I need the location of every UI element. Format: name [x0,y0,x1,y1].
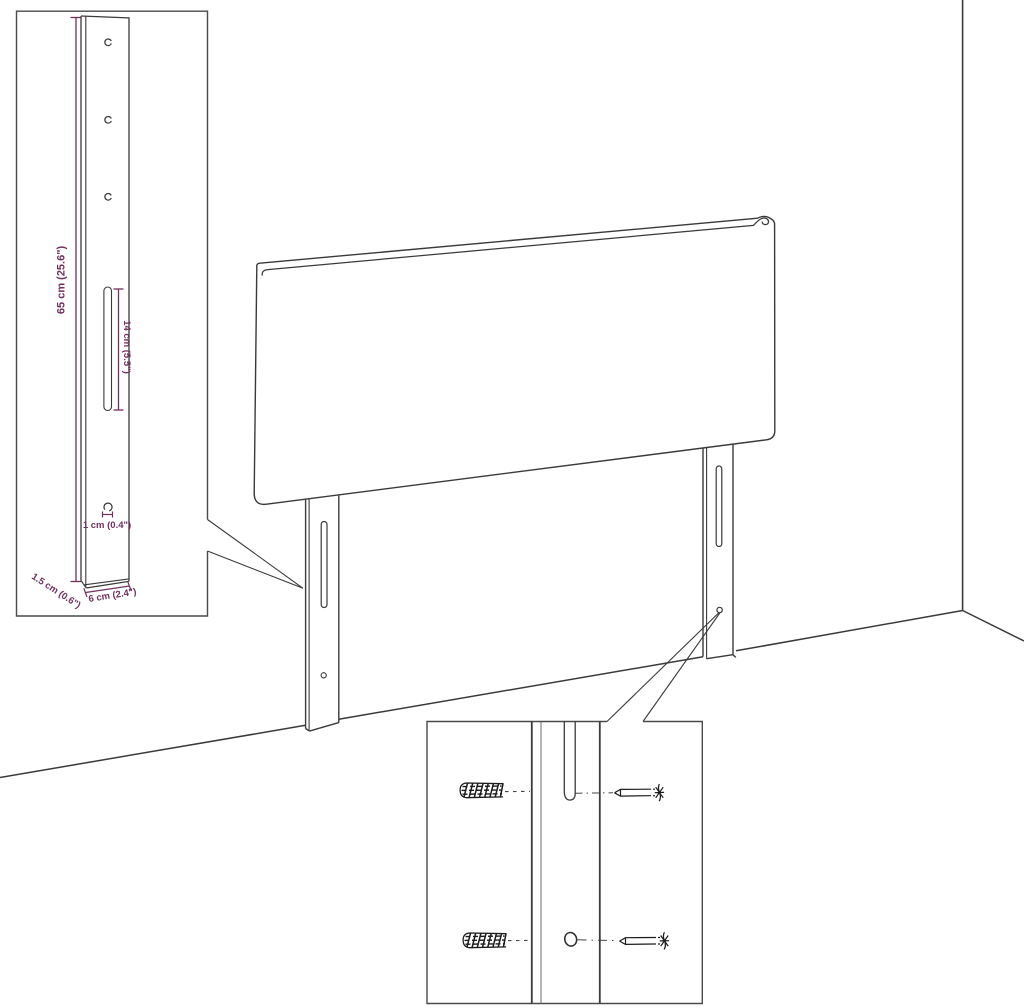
svg-text:65 cm (25.6"): 65 cm (25.6") [56,246,68,315]
svg-text:1.5 cm (0.6"): 1.5 cm (0.6") [29,571,82,611]
svg-text:14 cm (5.5"): 14 cm (5.5") [121,320,132,374]
svg-text:1 cm (0.4"): 1 cm (0.4") [83,520,131,531]
svg-text:6 cm (2.4"): 6 cm (2.4") [88,587,137,605]
